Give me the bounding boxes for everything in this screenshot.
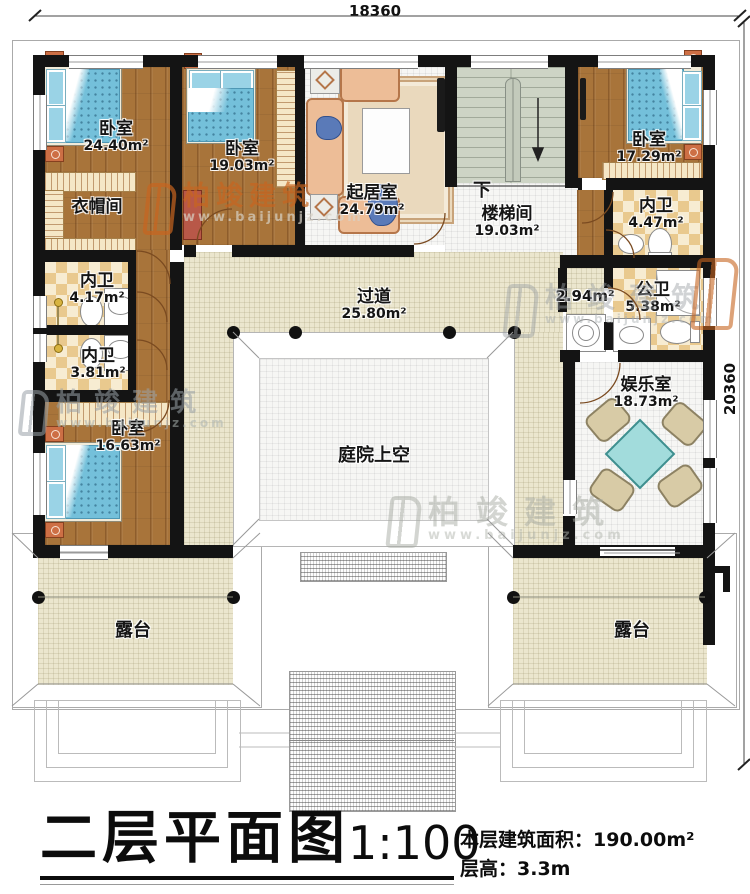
label-stairwell: 楼梯间 19.03m²: [447, 205, 567, 240]
label-bath-left-1: 内卫 4.17m²: [47, 272, 147, 307]
wall: [180, 545, 233, 558]
title-underline-thin: [40, 884, 454, 885]
wall: [33, 390, 136, 402]
label-bath-left-2: 内卫 3.81m²: [48, 347, 148, 382]
sheet-info: 本层建筑面积：190.00m² 层高：3.3m: [460, 826, 694, 883]
window: [198, 55, 277, 69]
window: [598, 55, 691, 69]
wall: [33, 545, 185, 558]
window: [69, 55, 143, 69]
coffee-table: [362, 108, 410, 174]
wall: [578, 178, 582, 190]
label-terrace-left: 露台: [83, 621, 183, 641]
sink: [619, 326, 644, 344]
bed-sheet: [63, 445, 89, 517]
pillow: [47, 446, 65, 482]
wall: [563, 516, 575, 545]
window: [703, 278, 717, 326]
window: [60, 545, 108, 560]
window: [33, 95, 47, 150]
dresser: [183, 190, 202, 240]
wall: [563, 362, 575, 480]
wall: [33, 250, 136, 262]
sofa: [340, 64, 400, 102]
wall: [170, 67, 182, 250]
label-bedroom-bottom-left: 卧室 16.63m²: [68, 420, 188, 455]
courtyard-inner: [259, 358, 489, 521]
corridor-left: [184, 332, 233, 545]
pillow: [47, 482, 65, 518]
window: [33, 296, 47, 328]
window: [33, 334, 47, 362]
lower-roof-hatch-main: [289, 671, 456, 812]
round-sink-inner: [578, 325, 594, 341]
title-underline: [40, 876, 454, 880]
wardrobe-shelving: [44, 172, 136, 192]
wall: [604, 322, 613, 350]
column-dot: [289, 326, 302, 339]
toilet: [660, 320, 694, 344]
nightstand: [45, 522, 64, 538]
sheet-floor-height: 层高：3.3m: [460, 855, 694, 884]
label-bedroom-top-mid: 卧室 19.03m²: [182, 140, 302, 175]
dimension-width: 18360: [340, 2, 410, 20]
wall: [445, 67, 457, 187]
bed-sheet: [188, 88, 252, 112]
column-dot: [32, 591, 45, 604]
label-corridor: 过道 25.80m²: [314, 288, 434, 323]
label-terrace-right: 露台: [582, 621, 682, 641]
sofa: [306, 98, 344, 196]
label-stair-direction: 下: [466, 181, 498, 201]
side-table: [310, 66, 340, 94]
column-dot: [227, 326, 240, 339]
wall: [560, 255, 715, 268]
person-figure: [316, 116, 342, 140]
wall: [170, 262, 184, 558]
column-dot: [443, 326, 456, 339]
lower-roof-hatch-band: [300, 552, 447, 582]
window: [33, 453, 47, 515]
floor-plan: 卧室 24.40m² 衣帽间 卧室 19.03m² 起居室 24.79m² 下 …: [0, 0, 750, 894]
bed-sheet: [660, 69, 682, 139]
chimney: [723, 566, 730, 592]
column-dot: [227, 591, 240, 604]
window: [703, 468, 717, 523]
wall: [560, 350, 580, 362]
label-bedroom-top-right: 卧室 17.29m²: [589, 131, 709, 166]
tv: [437, 78, 445, 132]
label-cloakroom: 衣帽间: [47, 198, 147, 217]
hall-right: [577, 190, 604, 263]
corridor-right: [513, 332, 563, 545]
roof-seam: [289, 740, 454, 741]
lower-roof-step: [524, 700, 682, 754]
stair-rail: [505, 78, 521, 182]
sheet-floor-area: 本层建筑面积：190.00m²: [460, 826, 694, 855]
label-bath-top-right: 内卫 4.47m²: [606, 197, 706, 232]
tv: [580, 78, 586, 120]
wall: [618, 350, 715, 362]
wall: [184, 245, 196, 257]
pillow: [47, 70, 65, 106]
pillow: [683, 72, 701, 106]
dimension-height: 20360: [721, 349, 739, 429]
label-bedroom-top-left: 卧室 24.40m²: [56, 120, 176, 155]
toilet-tank: [690, 321, 700, 343]
window: [304, 55, 418, 69]
sheet-title: 二层平面图: [40, 810, 350, 867]
nightstand: [45, 426, 64, 442]
label-bath-public: 公卫 5.38m²: [603, 281, 703, 316]
label-entertainment: 娱乐室 18.73m²: [586, 376, 706, 411]
lower-roof-step: [58, 700, 216, 754]
column-dot: [699, 591, 712, 604]
wall: [565, 67, 578, 188]
wall: [606, 178, 715, 190]
label-courtyard: 庭院上空: [294, 446, 454, 466]
window: [563, 480, 577, 514]
column-dot: [508, 326, 521, 339]
wall: [33, 325, 136, 335]
terrace-door-opening: [600, 547, 675, 556]
window: [471, 55, 548, 69]
column-dot: [507, 591, 520, 604]
sink: [618, 234, 644, 254]
label-living: 起居室 24.79m²: [312, 184, 432, 219]
wall: [232, 245, 414, 257]
